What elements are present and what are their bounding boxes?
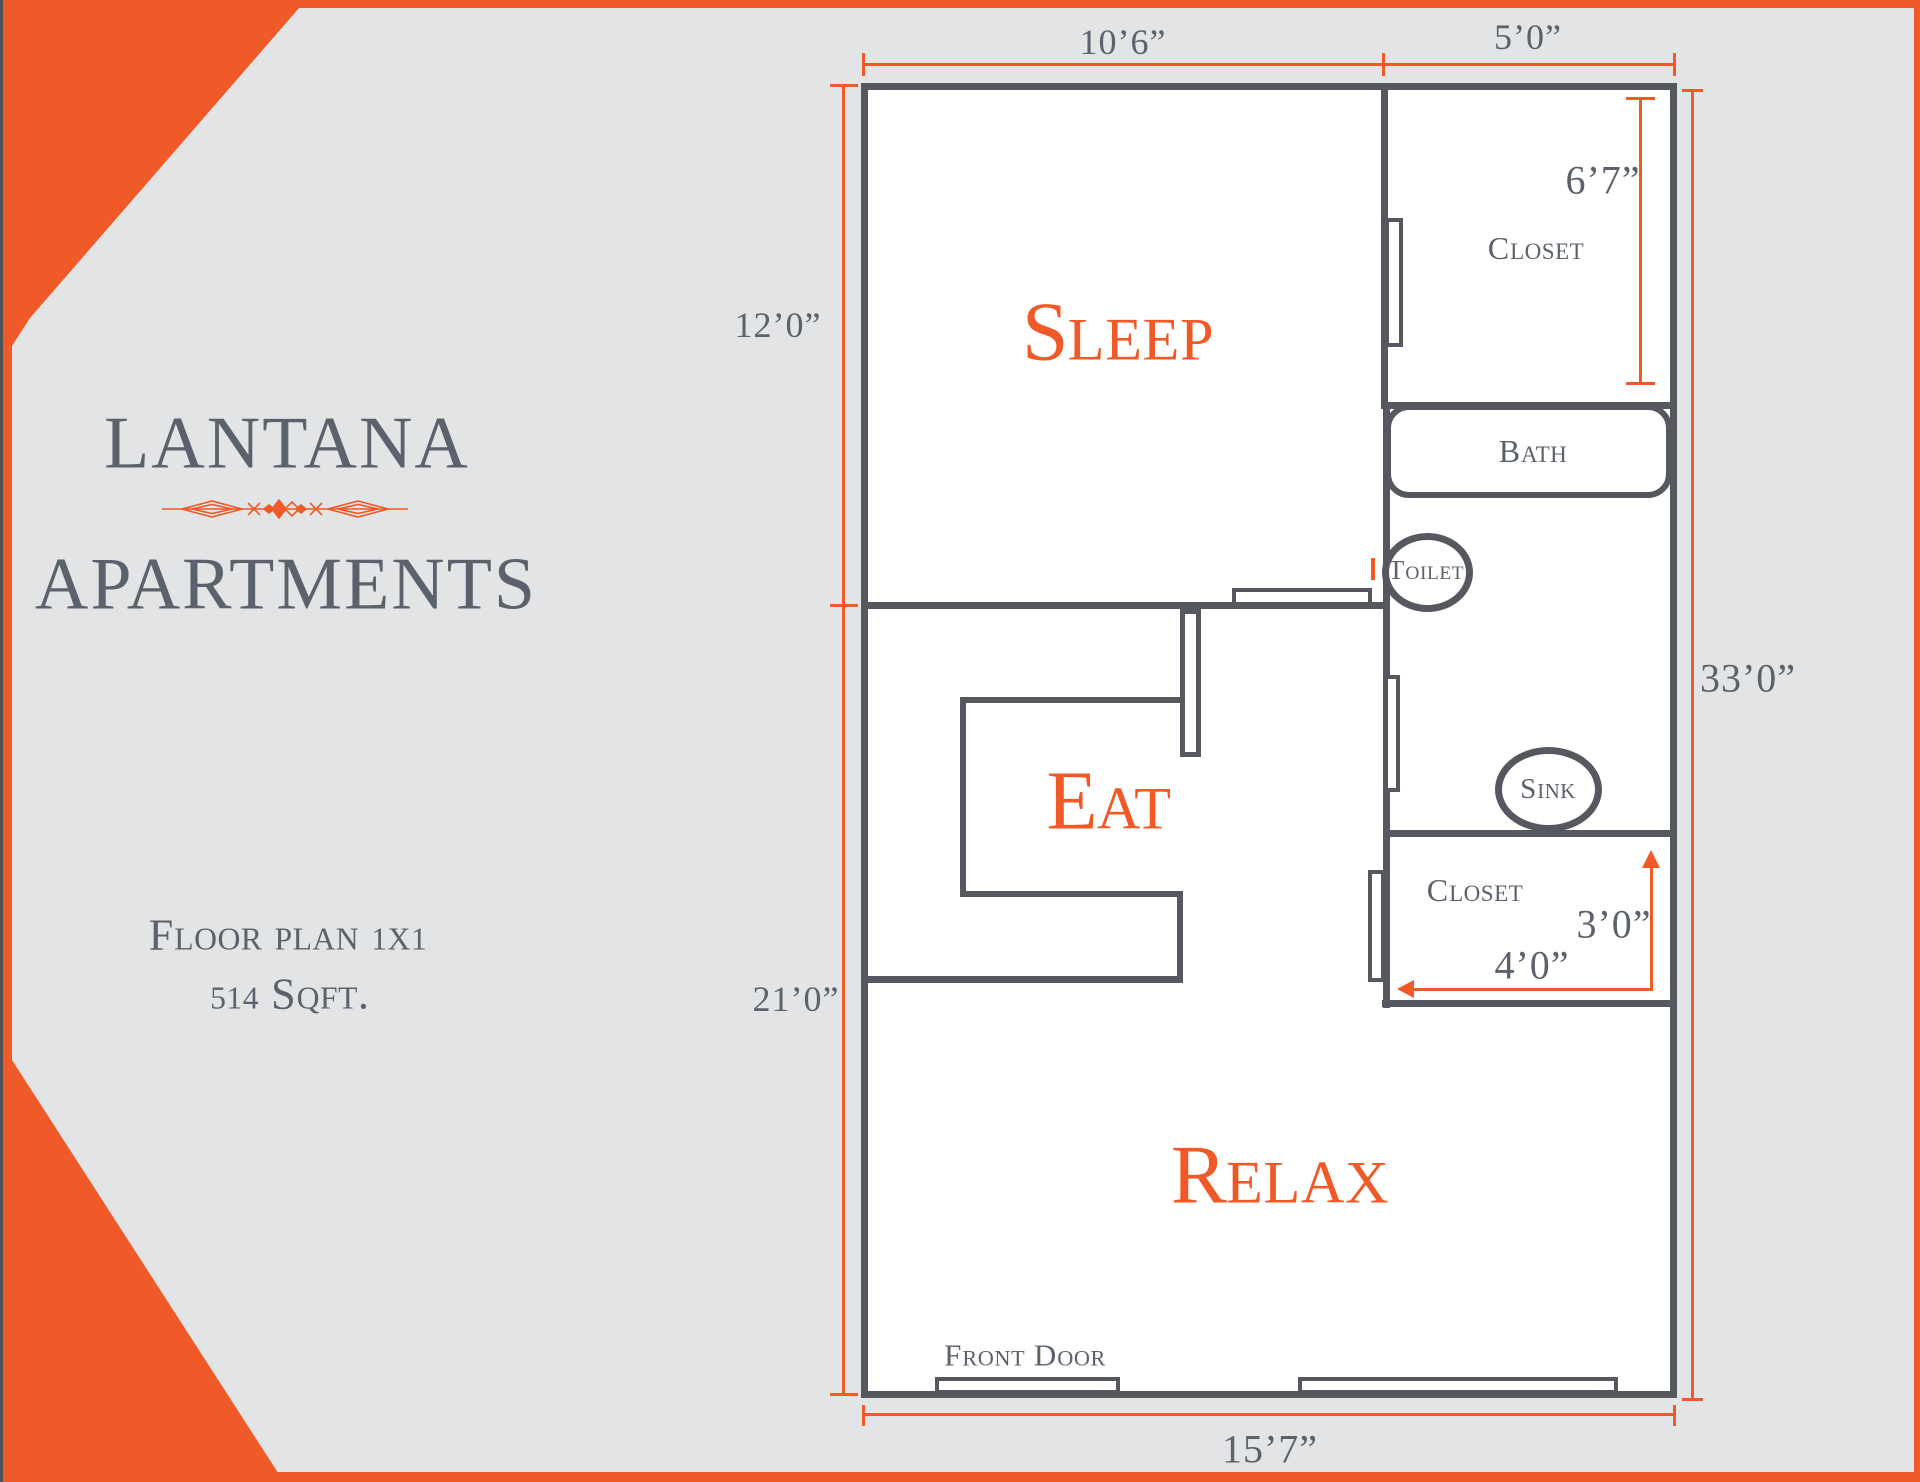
dim-line-right (1691, 90, 1694, 1400)
arrow-up-icon (1642, 850, 1660, 868)
brand-name-line2: APARTMENTS (35, 543, 537, 628)
dim-label-closet: 6’7” (1565, 157, 1640, 204)
bathroom-door-sill (1232, 588, 1372, 606)
closet-top-door-jamb (1385, 218, 1403, 347)
dim-line-left (842, 84, 845, 1396)
dim-label-right: 33’0” (1700, 655, 1796, 702)
wall-top (861, 83, 1677, 90)
kitchen-counter-bottom (960, 891, 1183, 897)
front-door-sill (935, 1377, 1120, 1394)
dim-label-closet2-height: 3’0” (1576, 901, 1651, 948)
relax-door-sill (1298, 1377, 1618, 1394)
top-left-triangle (0, 0, 306, 346)
kitchen-counter-right (1177, 891, 1183, 982)
dim-label-top-left: 10’6” (1080, 21, 1167, 63)
plan-type-label: FLOOR PLAN 1X1 (149, 910, 427, 961)
dim-tick (1682, 1398, 1703, 1401)
room-label-eat: EAT (1046, 753, 1171, 850)
dim-tick (1382, 53, 1385, 76)
dim-tick (830, 84, 858, 87)
fixture-label-toilet: TOILET (1388, 555, 1464, 586)
kitchen-counter-top (960, 697, 1183, 703)
fixture-label-closet-bottom: CLOSET (1427, 872, 1524, 909)
floor-plan-flyer: LANTANA APARTMENTS FLOOR PLAN 1X1 514 SQ… (0, 0, 1920, 1482)
closet-bottom-door-jamb (1368, 870, 1385, 982)
dim-tick (1626, 97, 1655, 100)
dim-label-top-right: 5’0” (1494, 16, 1562, 58)
dim-line-bottom (863, 1413, 1675, 1416)
fixture-label-sink: SINK (1520, 773, 1576, 806)
fixture-label-closet-top: CLOSET (1488, 230, 1585, 267)
dim-tick (862, 53, 865, 76)
fixture-label-bath: BATH (1499, 433, 1568, 470)
dim-tick (1626, 382, 1655, 385)
dim-label-bottom: 15’7” (1222, 1426, 1318, 1473)
bottom-edge-strip (0, 1472, 1920, 1482)
area-label: 514 SQFT. (210, 969, 370, 1020)
dim-tick (862, 1405, 865, 1426)
dim-label-closet2-width: 4’0” (1494, 942, 1569, 989)
kitchen-half-wall (1180, 609, 1201, 757)
brand-name-line1: LANTANA (104, 402, 470, 487)
wall-eat-bottom (861, 976, 1183, 983)
dim-tick (830, 1393, 858, 1396)
wall-sink-closet-top (1383, 830, 1673, 837)
wall-sink-closet-bottom (1382, 1000, 1672, 1007)
dim-label-left-lower: 21’0” (753, 978, 840, 1020)
dim-line-closet (1639, 98, 1642, 385)
wall-right (1670, 83, 1677, 1398)
kitchen-counter-left (960, 697, 966, 897)
bottom-left-triangle (0, 1050, 284, 1482)
bathroom-door-jamb (1384, 675, 1400, 792)
wall-left (861, 83, 868, 1398)
room-label-sleep: SLEEP (1022, 284, 1214, 381)
fixture-label-front-door: FRONT DOOR (944, 1337, 1106, 1373)
left-dark-line (0, 0, 3, 1482)
dim-tick (830, 604, 858, 607)
right-edge-strip (1914, 0, 1920, 1482)
ornament-divider-icon (160, 494, 410, 524)
dim-tick (1673, 53, 1676, 76)
dim-tick (1673, 1405, 1676, 1426)
dim-line-top (863, 63, 1675, 66)
dim-label-left-upper: 12’0” (735, 304, 822, 346)
arrow-left-icon (1397, 980, 1414, 998)
dim-tick (1682, 89, 1703, 92)
toilet-wall-tick (1371, 558, 1375, 580)
room-label-relax: RELAX (1171, 1127, 1389, 1224)
